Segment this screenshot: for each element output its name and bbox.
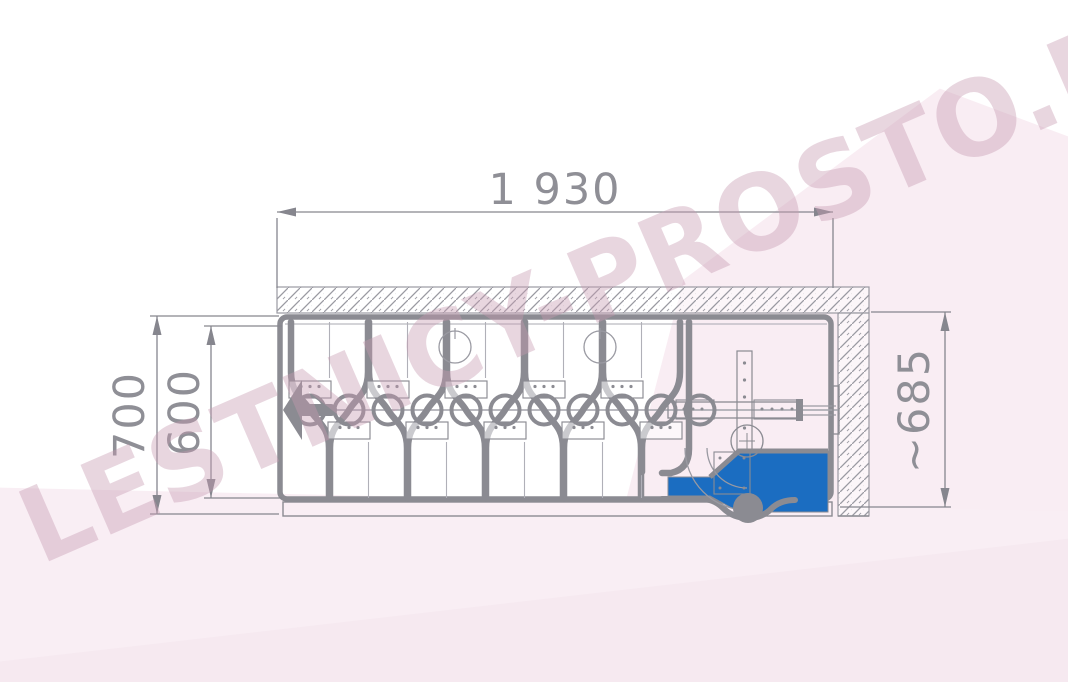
plate-rivet: [308, 385, 311, 388]
wall-hatch-top: [277, 287, 869, 313]
dim-arrow-down: [207, 479, 216, 498]
plate-rivet: [590, 426, 593, 429]
dim-opening-width: 1 930: [277, 165, 833, 288]
dim-arrow-down: [941, 488, 950, 507]
plate-rivet: [668, 426, 671, 429]
dim-arrow-down: [153, 495, 162, 514]
plate-rivet: [455, 385, 458, 388]
plate-rivet: [620, 385, 623, 388]
plate-rivet: [542, 385, 545, 388]
plate-rivet: [473, 385, 476, 388]
dim-arrow-right: [814, 208, 833, 217]
pivot-knob: [733, 493, 763, 523]
dim-arrow-left: [277, 208, 296, 217]
plate-rivet: [338, 426, 341, 429]
dim-label-opening-width: 1 930: [488, 165, 621, 215]
plate-rivet: [629, 385, 632, 388]
plate-rivet: [512, 426, 515, 429]
dim-label-inner-height: 600: [160, 368, 210, 456]
plate-rivet: [533, 385, 536, 388]
plate-rivet: [377, 385, 380, 388]
plate-rivet: [416, 426, 419, 429]
plate-rivet: [611, 385, 614, 388]
dim-label-right-height: ~685: [890, 347, 940, 473]
dim-arrow-up: [207, 326, 216, 345]
dim-inner-height: 600: [160, 326, 282, 498]
latch-rail-endcap: [796, 399, 803, 421]
plate-rivet: [551, 385, 554, 388]
dim-arrow-up: [941, 312, 950, 331]
latch-mechanism: [662, 322, 839, 523]
plate-rivet: [386, 385, 389, 388]
dim-arrow-up: [153, 316, 162, 335]
dim-label-outer-height: 700: [105, 371, 155, 459]
plate-rivet: [395, 385, 398, 388]
plate-rivet: [356, 426, 359, 429]
plate-rivet: [317, 385, 320, 388]
plate-rivet: [434, 426, 437, 429]
plate-rivet: [572, 426, 575, 429]
plate-rivet: [464, 385, 467, 388]
plate-rivet: [650, 426, 653, 429]
ladder-technical-drawing: 1 930 700 600 ~685: [0, 0, 1068, 682]
latch-plate-rivets: [743, 361, 746, 429]
wall-hatch-right: [838, 313, 869, 516]
plate-rivet: [494, 426, 497, 429]
